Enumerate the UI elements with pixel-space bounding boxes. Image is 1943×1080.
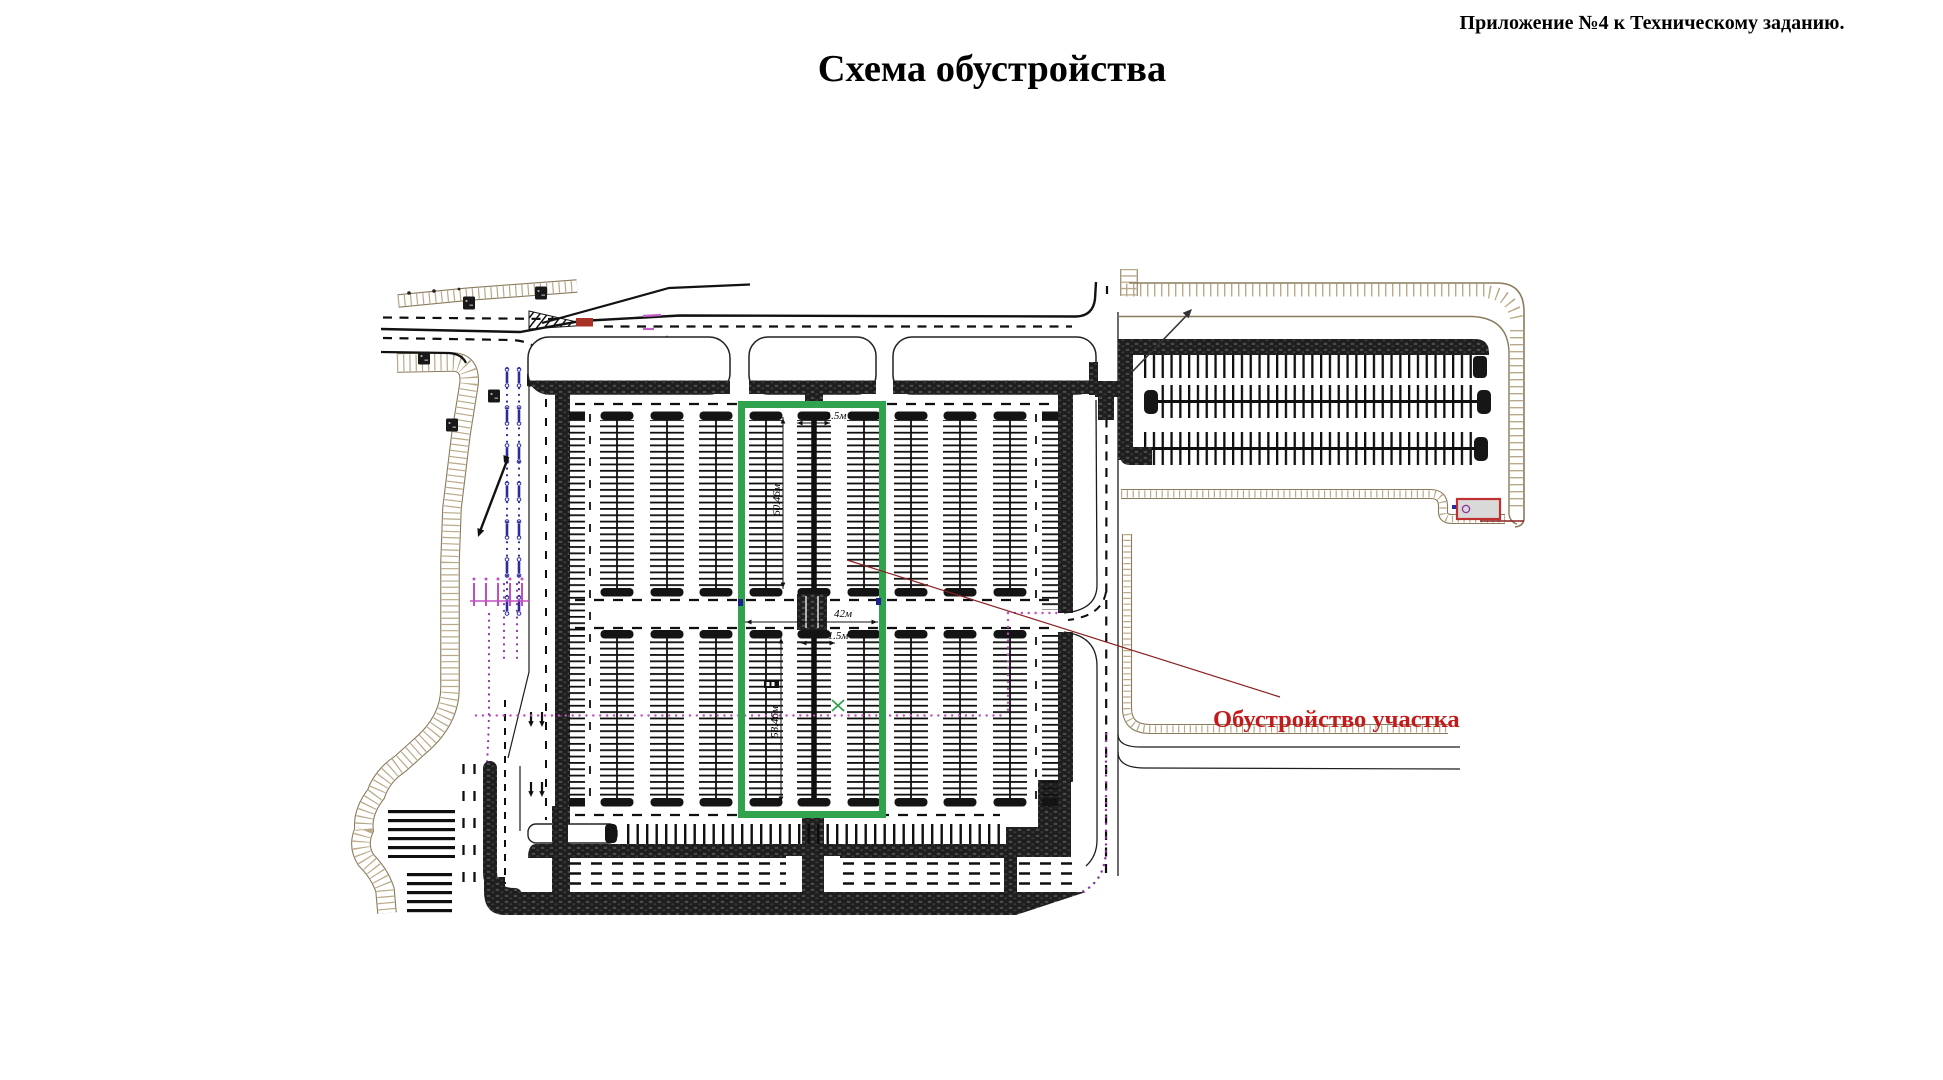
svg-text:Схема обустройства: Схема обустройства [818, 48, 1166, 90]
svg-text:1.5м: 1.5м [826, 410, 847, 422]
svg-text:58.46м: 58.46м [769, 706, 781, 738]
svg-text:42м: 42м [834, 608, 852, 620]
svg-text:1.5м: 1.5м [828, 630, 849, 642]
svg-text:Обустройство участка: Обустройство участка [1213, 706, 1460, 733]
svg-text:60.46м: 60.46м [771, 484, 783, 516]
svg-text:Приложение №4 к Техническому з: Приложение №4 к Техническому заданию. [1460, 12, 1845, 34]
